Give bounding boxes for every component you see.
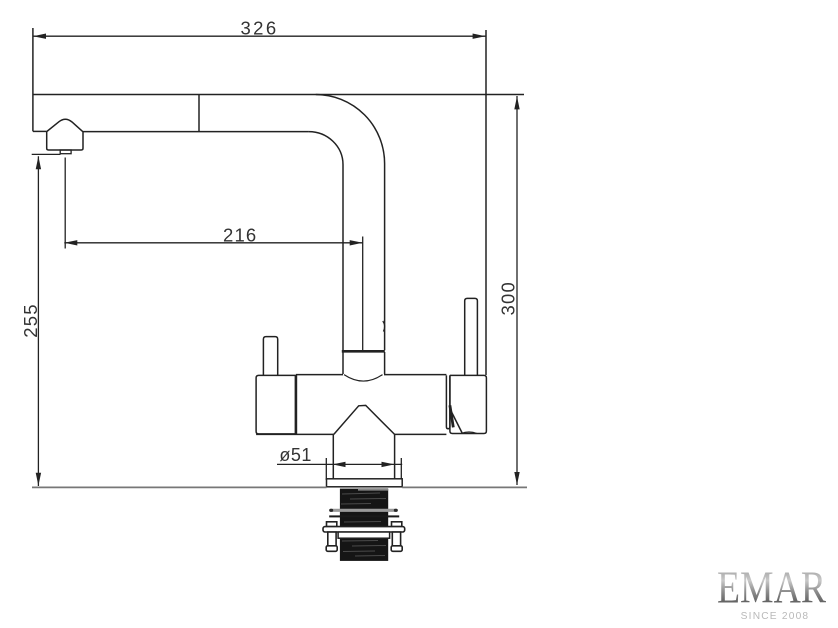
- svg-text:255: 255: [20, 303, 41, 337]
- svg-text:216: 216: [223, 224, 257, 245]
- svg-text:EMAR: EMAR: [717, 563, 826, 613]
- svg-text:ø51: ø51: [279, 445, 312, 465]
- svg-text:SINCE 2008: SINCE 2008: [741, 611, 810, 622]
- svg-text:326: 326: [240, 17, 278, 38]
- svg-text:300: 300: [497, 281, 518, 315]
